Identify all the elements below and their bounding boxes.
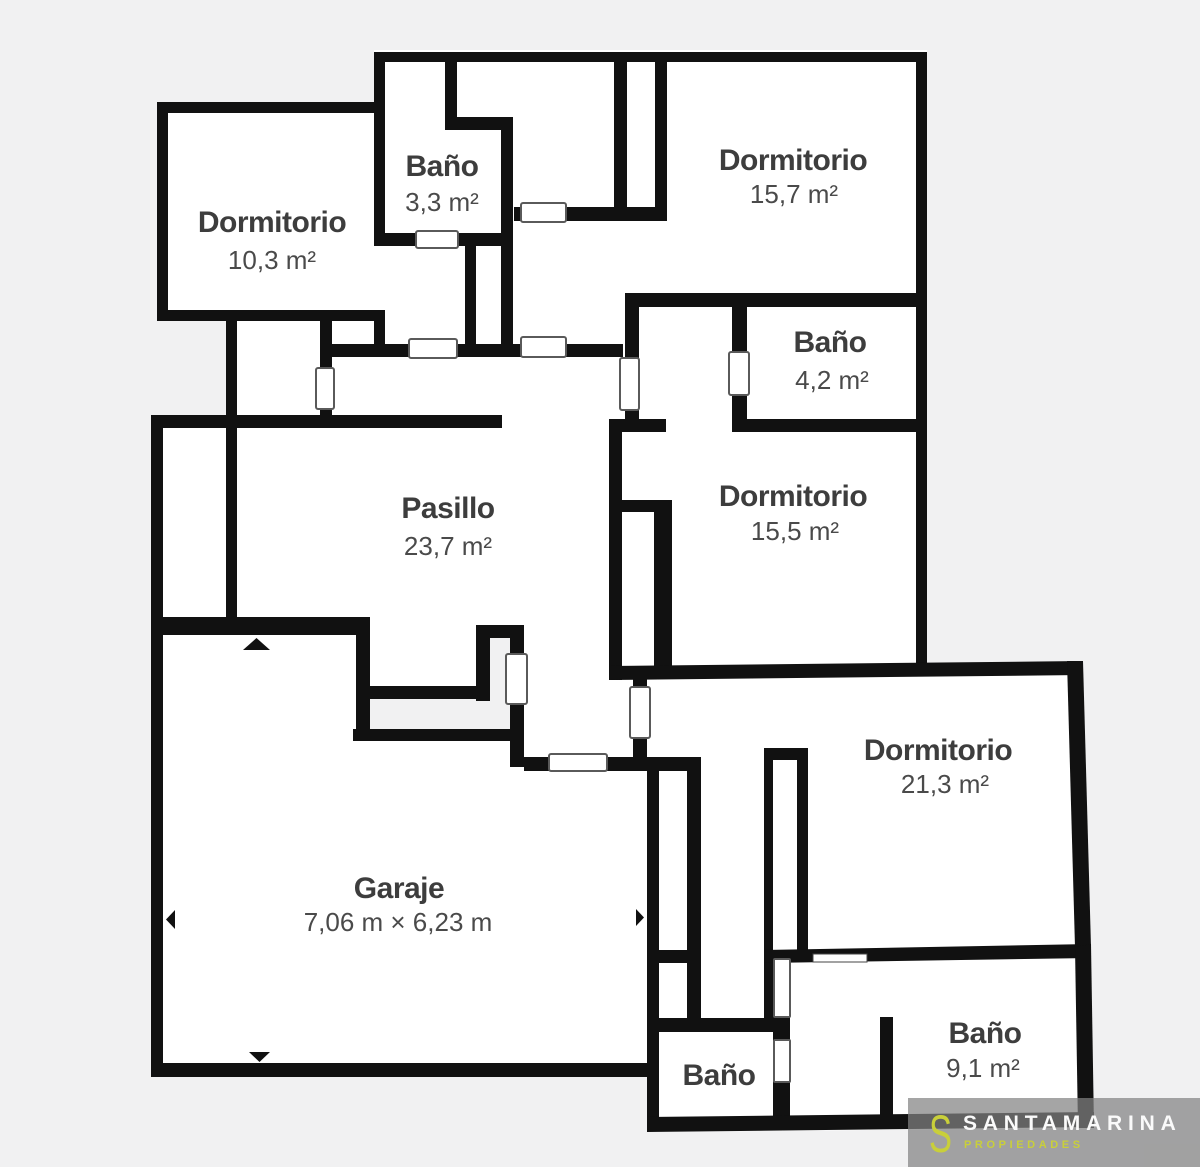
svg-text:7,06 m × 6,23 m: 7,06 m × 6,23 m bbox=[304, 907, 493, 937]
svg-text:Dormitorio: Dormitorio bbox=[719, 480, 868, 513]
svg-text:PROPIEDADES: PROPIEDADES bbox=[964, 1139, 1084, 1151]
svg-text:3,3 m²: 3,3 m² bbox=[405, 187, 479, 217]
svg-text:15,5 m²: 15,5 m² bbox=[751, 516, 839, 546]
svg-text:15,7 m²: 15,7 m² bbox=[750, 179, 838, 209]
svg-text:Baño: Baño bbox=[406, 150, 479, 183]
svg-text:Baño: Baño bbox=[794, 326, 867, 359]
svg-text:Dormitorio: Dormitorio bbox=[198, 206, 347, 239]
svg-text:Baño: Baño bbox=[683, 1059, 756, 1092]
svg-text:SANTAMARINA: SANTAMARINA bbox=[963, 1112, 1182, 1135]
svg-text:10,3 m²: 10,3 m² bbox=[228, 245, 316, 275]
svg-text:Dormitorio: Dormitorio bbox=[719, 144, 868, 177]
svg-text:Dormitorio: Dormitorio bbox=[864, 734, 1013, 767]
svg-text:S: S bbox=[929, 1105, 952, 1164]
svg-text:Pasillo: Pasillo bbox=[401, 492, 494, 525]
svg-text:23,7 m²: 23,7 m² bbox=[404, 531, 492, 561]
svg-text:21,3 m²: 21,3 m² bbox=[901, 769, 989, 799]
svg-text:4,2 m²: 4,2 m² bbox=[795, 365, 869, 395]
svg-text:Garaje: Garaje bbox=[354, 872, 444, 905]
svg-text:Baño: Baño bbox=[949, 1017, 1022, 1050]
svg-text:9,1 m²: 9,1 m² bbox=[946, 1053, 1020, 1083]
